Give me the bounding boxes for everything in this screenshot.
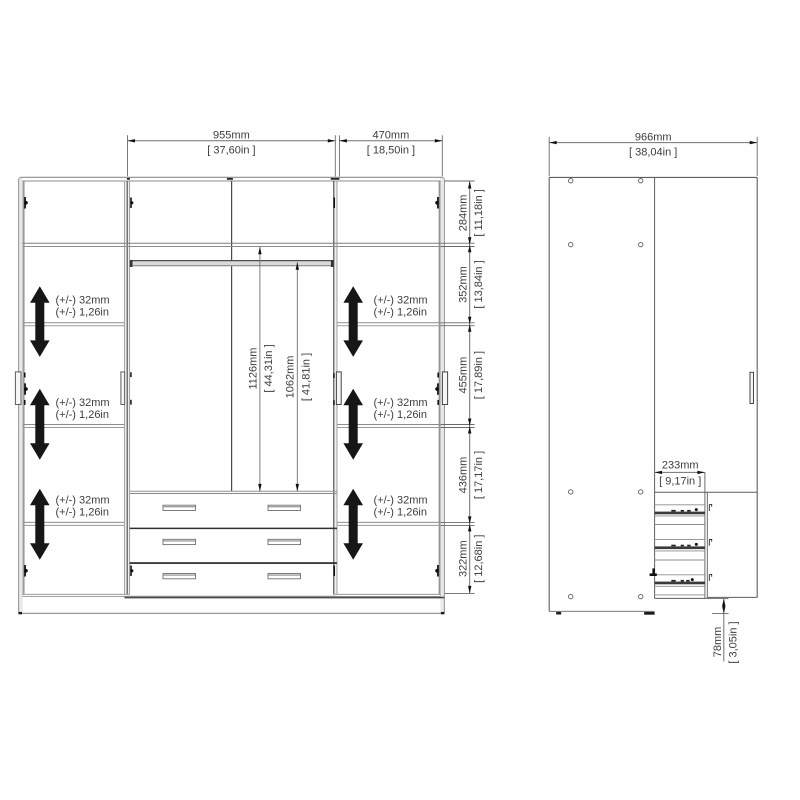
- svg-text:436mm: 436mm: [457, 457, 469, 494]
- svg-text:(+/-) 1,26in: (+/-) 1,26in: [374, 506, 428, 518]
- svg-text:(+/-) 1,26in: (+/-) 1,26in: [56, 306, 110, 318]
- svg-text:(+/-) 32mm: (+/-) 32mm: [374, 397, 428, 409]
- svg-text:(+/-) 32mm: (+/-) 32mm: [374, 494, 428, 506]
- svg-text:1062mm: 1062mm: [285, 356, 297, 399]
- svg-text:(+/-) 1,26in: (+/-) 1,26in: [56, 409, 110, 421]
- svg-text:[ 38,04in ]: [ 38,04in ]: [629, 146, 677, 158]
- svg-text:[ 17,17in ]: [ 17,17in ]: [473, 451, 485, 499]
- svg-text:[ 17,89in ]: [ 17,89in ]: [473, 351, 485, 399]
- svg-text:233mm: 233mm: [662, 459, 699, 471]
- svg-text:455mm: 455mm: [457, 357, 469, 394]
- svg-text:[ 9,17in ]: [ 9,17in ]: [659, 476, 701, 488]
- svg-text:284mm: 284mm: [457, 195, 469, 232]
- svg-text:[ 13,84in ]: [ 13,84in ]: [473, 260, 485, 308]
- svg-text:78mm: 78mm: [712, 627, 724, 658]
- svg-text:352mm: 352mm: [457, 266, 469, 303]
- svg-text:(+/-) 1,26in: (+/-) 1,26in: [56, 506, 110, 518]
- svg-text:(+/-) 32mm: (+/-) 32mm: [374, 294, 428, 306]
- svg-text:(+/-) 32mm: (+/-) 32mm: [56, 294, 110, 306]
- svg-text:322mm: 322mm: [457, 540, 469, 577]
- svg-text:1126mm: 1126mm: [248, 348, 260, 390]
- svg-text:[ 37,60in ]: [ 37,60in ]: [207, 145, 255, 157]
- svg-text:470mm: 470mm: [373, 130, 410, 142]
- svg-text:[ 44,31in ]: [ 44,31in ]: [263, 344, 275, 392]
- svg-text:(+/-) 32mm: (+/-) 32mm: [56, 397, 110, 409]
- svg-text:955mm: 955mm: [213, 130, 250, 142]
- svg-text:[ 18,50in ]: [ 18,50in ]: [367, 145, 415, 157]
- svg-text:(+/-) 1,26in: (+/-) 1,26in: [374, 306, 428, 318]
- svg-text:[ 11,18in ]: [ 11,18in ]: [473, 189, 485, 237]
- svg-text:(+/-) 1,26in: (+/-) 1,26in: [374, 409, 428, 421]
- svg-text:[ 3,05in ]: [ 3,05in ]: [728, 621, 740, 663]
- svg-text:(+/-) 32mm: (+/-) 32mm: [56, 494, 110, 506]
- svg-text:966mm: 966mm: [635, 131, 672, 143]
- svg-text:[ 12,68in ]: [ 12,68in ]: [473, 535, 485, 583]
- svg-text:[ 41,81in ]: [ 41,81in ]: [300, 353, 312, 401]
